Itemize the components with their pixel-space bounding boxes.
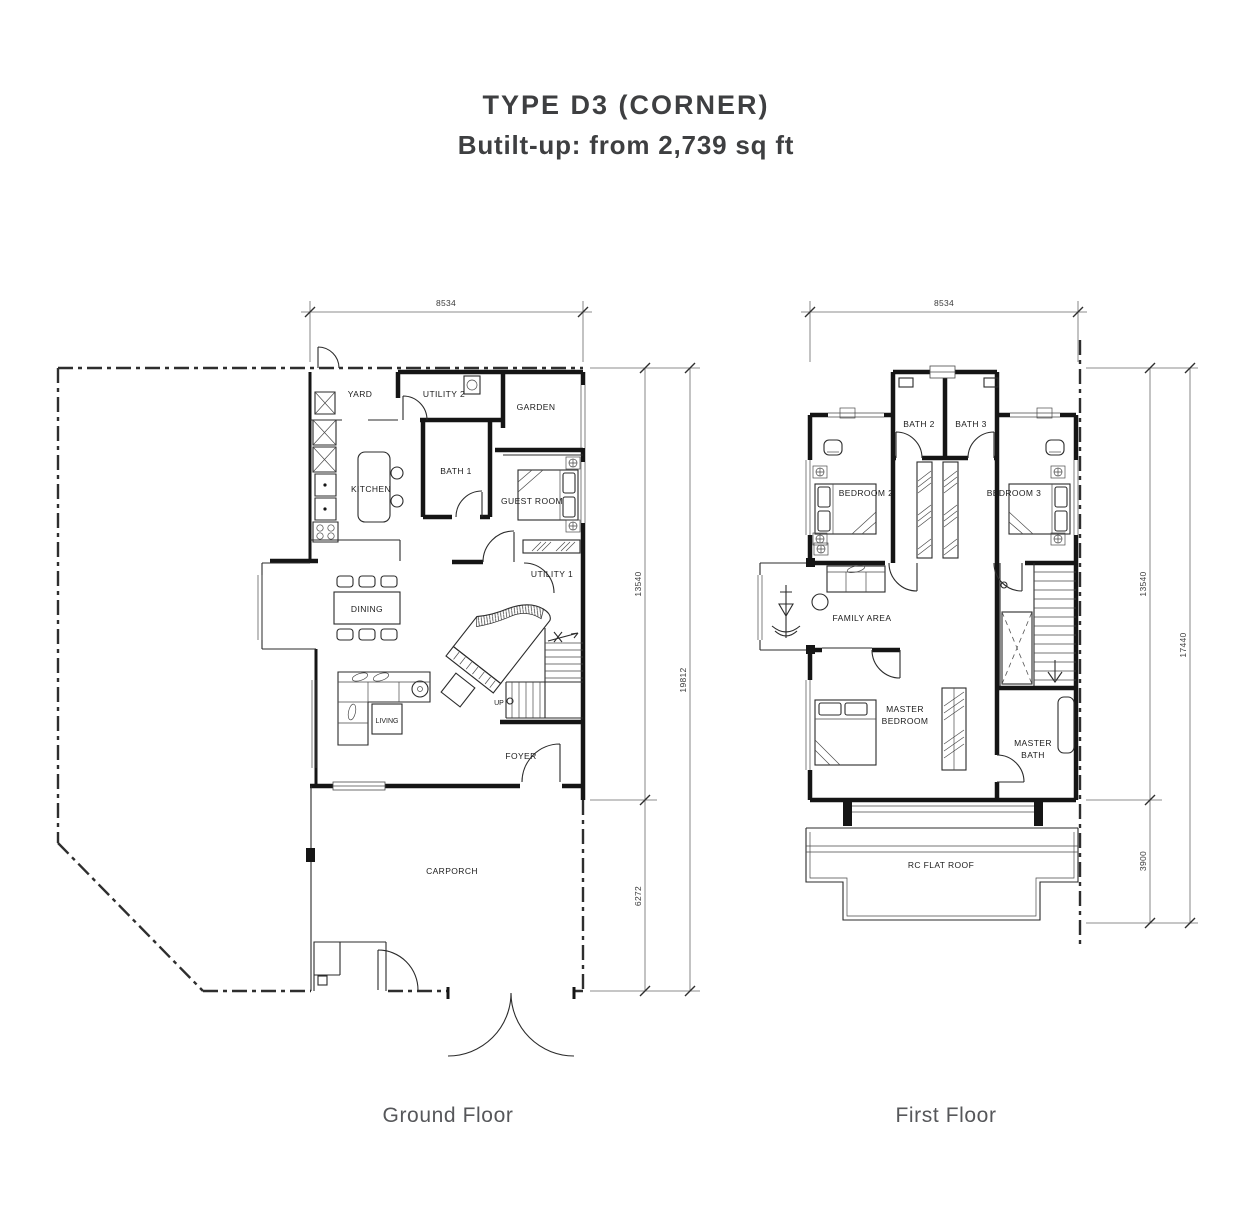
column-icon (306, 848, 315, 862)
piano-bench-icon (441, 673, 475, 707)
ac-icon (566, 457, 580, 469)
room-label-living: LIVING (376, 718, 399, 725)
family-sofa-icon (812, 564, 885, 610)
room-label-bedroom3: BEDROOM 3 (987, 488, 1042, 498)
first-dim-depth: 13540 3900 17440 (1086, 363, 1198, 928)
bathtub-icon (1058, 697, 1074, 753)
grand-piano-icon (446, 579, 553, 692)
bed-icon-guest (518, 470, 578, 520)
room-label-utility2: UTILITY 2 (423, 389, 465, 399)
first-dim-upper-label: 13540 (1138, 571, 1148, 596)
room-label-family: FAMILY AREA (833, 613, 892, 623)
pier-icon (806, 558, 815, 567)
room-label-master-bath-1: MASTER (1014, 738, 1052, 748)
first-dim-width: 8534 (801, 298, 1087, 362)
pier-icon (806, 645, 815, 654)
stairs-ground-icon (506, 628, 583, 718)
room-label-dining: DINING (351, 604, 383, 614)
ground-dim-depth: 13540 6272 19812 (590, 363, 700, 996)
room-label-bath1: BATH 1 (440, 466, 472, 476)
room-label-foyer: FOYER (505, 751, 536, 761)
room-label-bath2: BATH 2 (903, 419, 935, 429)
rc-flat-roof-outline (806, 828, 1078, 920)
stairs-first-icon (1000, 563, 1076, 686)
ac-icon (1051, 466, 1065, 478)
room-label-master-bedroom-2: BEDROOM (882, 716, 929, 726)
room-label-bath3: BATH 3 (955, 419, 987, 429)
room-label-carporch: CARPORCH (426, 866, 478, 876)
first-walls-thick (810, 372, 1076, 800)
kitchen-cabinets-icon (310, 392, 400, 561)
first-floor-plan: 8534 13540 3900 17440 (758, 298, 1198, 945)
first-dim-total-label: 17440 (1178, 632, 1188, 657)
page-title: TYPE D3 (CORNER) (482, 90, 769, 120)
ground-dim-upper-label: 13540 (633, 571, 643, 596)
first-dim-width-label: 8534 (934, 298, 954, 308)
room-label-master-bedroom-1: MASTER (886, 704, 924, 714)
ground-dim-width: 8534 (301, 298, 592, 362)
ground-floor-caption: Ground Floor (383, 1104, 514, 1127)
pillar-icon (843, 800, 852, 826)
first-dim-lower-label: 3900 (1138, 851, 1148, 871)
gate-arcs (448, 987, 574, 1056)
meter-box-icon (318, 976, 327, 985)
room-label-kitchen: KITCHEN (351, 484, 391, 494)
ground-dim-width-label: 8534 (436, 298, 456, 308)
room-label-bedroom2: BEDROOM 2 (839, 488, 894, 498)
family-balcony-outline (760, 563, 872, 650)
ac-icon (813, 466, 827, 478)
room-label-guest: GUEST ROOM (501, 496, 563, 506)
room-label-rc-flat-roof: RC FLAT ROOF (908, 860, 974, 870)
laundry-rack-icon (772, 585, 800, 638)
pillar-icon (1034, 800, 1043, 826)
utility1-closet-icon (523, 540, 580, 553)
ground-dim-total-label: 19812 (678, 667, 688, 692)
room-label-garden: GARDEN (517, 402, 556, 412)
ground-dim-lower-label: 6272 (633, 886, 643, 906)
room-label-up: UP (494, 700, 504, 707)
basin-icon (899, 378, 913, 387)
sofa-icon (338, 671, 430, 745)
room-label-yard: YARD (348, 389, 373, 399)
room-label-utility1: UTILITY 1 (531, 569, 573, 579)
first-floor-caption: First Floor (895, 1104, 996, 1127)
ac-icon (1051, 533, 1065, 545)
ground-floor-plan: 8534 13540 6272 19812 (58, 298, 700, 1056)
bed-icon-master (815, 700, 876, 765)
washer-icon (464, 376, 480, 394)
ground-door-arcs (318, 347, 560, 990)
room-label-master-bath-2: BATH (1021, 750, 1045, 760)
page-subtitle: Butilt-up: from 2,739 sq ft (458, 130, 795, 160)
ac-icon (566, 520, 580, 532)
wardrobe-icon-master (942, 688, 966, 770)
wardrobe-icon (917, 462, 958, 558)
